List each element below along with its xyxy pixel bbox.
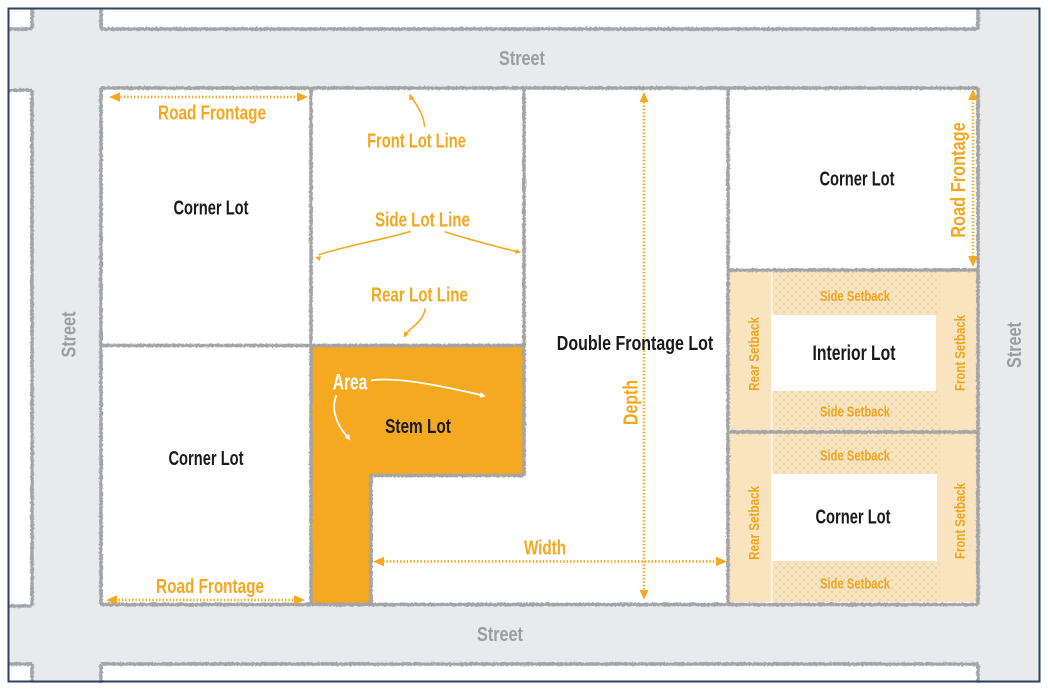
svg-text:Street: Street xyxy=(477,624,523,646)
svg-text:Corner Lot: Corner Lot xyxy=(173,196,248,219)
svg-text:Street: Street xyxy=(58,312,80,358)
svg-text:Rear Setback: Rear Setback xyxy=(746,317,763,391)
svg-text:Street: Street xyxy=(1004,322,1026,368)
svg-text:Corner Lot: Corner Lot xyxy=(819,167,894,190)
svg-text:Front Setback: Front Setback xyxy=(951,483,968,559)
svg-text:Double Frontage Lot: Double Frontage Lot xyxy=(557,333,713,355)
svg-text:Corner Lot: Corner Lot xyxy=(815,505,890,528)
svg-text:Interior Lot: Interior Lot xyxy=(812,341,895,365)
svg-text:Road Frontage: Road Frontage xyxy=(156,575,264,597)
svg-text:Stem Lot: Stem Lot xyxy=(385,415,451,437)
svg-text:Road Frontage: Road Frontage xyxy=(946,122,969,238)
svg-text:Depth: Depth xyxy=(620,380,642,425)
svg-text:Front Setback: Front Setback xyxy=(951,315,968,391)
svg-text:Side Setback: Side Setback xyxy=(820,447,891,464)
svg-text:Area: Area xyxy=(333,371,368,395)
svg-text:Side Setback: Side Setback xyxy=(820,403,891,420)
svg-text:Side Setback: Side Setback xyxy=(820,575,891,592)
svg-text:Side Setback: Side Setback xyxy=(820,287,891,304)
svg-text:Side Lot Line: Side Lot Line xyxy=(375,209,470,232)
svg-text:Width: Width xyxy=(524,537,566,560)
svg-text:Front Lot Line: Front Lot Line xyxy=(367,129,466,152)
svg-text:Rear Setback: Rear Setback xyxy=(746,486,763,560)
svg-text:Road Frontage: Road Frontage xyxy=(158,102,266,124)
svg-text:Rear Lot Line: Rear Lot Line xyxy=(371,284,468,307)
svg-text:Street: Street xyxy=(499,48,545,70)
svg-text:Corner Lot: Corner Lot xyxy=(168,447,243,470)
